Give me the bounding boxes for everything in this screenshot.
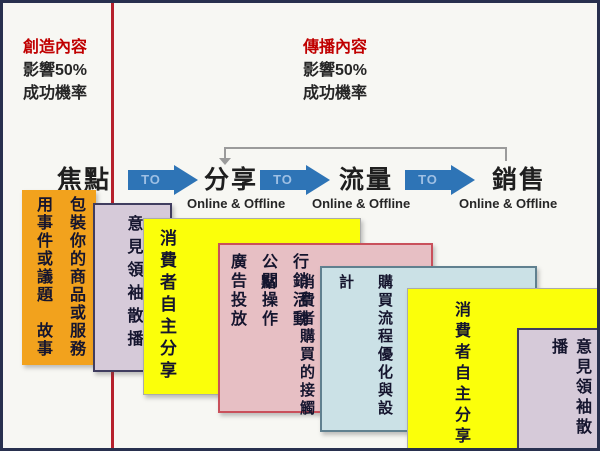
card-opinion-leader-left-text: 意見領袖散播 [121, 215, 145, 353]
to-arrow-head-icon [174, 165, 198, 195]
to-arrow-head-icon [306, 165, 330, 195]
to-arrow-label: TO [405, 172, 451, 187]
card-text-column: 用事件或議題 故事 [26, 196, 59, 358]
to-arrow-label: TO [260, 172, 306, 187]
card-opinion-leader-right: 意見領袖散播 [517, 328, 600, 451]
spread-content-title: 傳播內容 [303, 36, 367, 59]
create-content-success: 成功機率 [23, 82, 87, 105]
to-arrow-label: TO [128, 172, 174, 187]
feedback-connector-line [225, 147, 507, 149]
create-content-block: 創造內容 影響50% 成功機率 [23, 36, 87, 105]
card-text-column: 消費者購買的接觸點 [248, 274, 326, 430]
create-content-title: 創造內容 [23, 36, 87, 59]
to-arrow-2: TO [260, 165, 330, 195]
to-arrow-1: TO [128, 165, 198, 195]
spread-content-impact: 影響50% [303, 59, 367, 82]
spread-content-block: 傳播內容 影響50% 成功機率 [303, 36, 367, 105]
flow-label-traffic: 流量 [339, 160, 393, 196]
flow-sub-traffic: Online & Offline [312, 196, 410, 211]
to-arrow-head-icon [451, 165, 475, 195]
flow-sub-sales: Online & Offline [459, 196, 557, 211]
feedback-connector-right-drop [505, 147, 507, 161]
card-story-packaging: 包裝你的商品或服務 用事件或議題 故事 [22, 190, 96, 365]
card-consumer-sharing-right-text: 消費者自主分享 [448, 301, 472, 448]
flow-sub-share: Online & Offline [187, 196, 285, 211]
create-content-impact: 影響50% [23, 59, 87, 82]
card-text-column: 包裝你的商品或服務 [59, 196, 92, 358]
slide-canvas: 創造內容 影響50% 成功機率 傳播內容 影響50% 成功機率 焦點 TO 分享… [0, 0, 600, 451]
spread-content-success: 成功機率 [303, 82, 367, 105]
card-text-column: 購買流程優化與設計 [326, 274, 404, 430]
flow-label-sales: 銷售 [492, 160, 546, 196]
flow-label-share: 分享 [204, 160, 258, 196]
card-purchase-optimization-text: 購買流程優化與設計 消費者購買的接觸點 [332, 274, 404, 430]
card-story-packaging-text: 包裝你的商品或服務 用事件或議題 故事 [26, 196, 92, 358]
to-arrow-3: TO [405, 165, 475, 195]
card-opinion-leader-right-text: 意見領袖散播 [545, 338, 593, 451]
card-consumer-sharing-left-text: 消費者自主分享 [154, 229, 179, 383]
feedback-connector-left-drop [224, 147, 226, 158]
